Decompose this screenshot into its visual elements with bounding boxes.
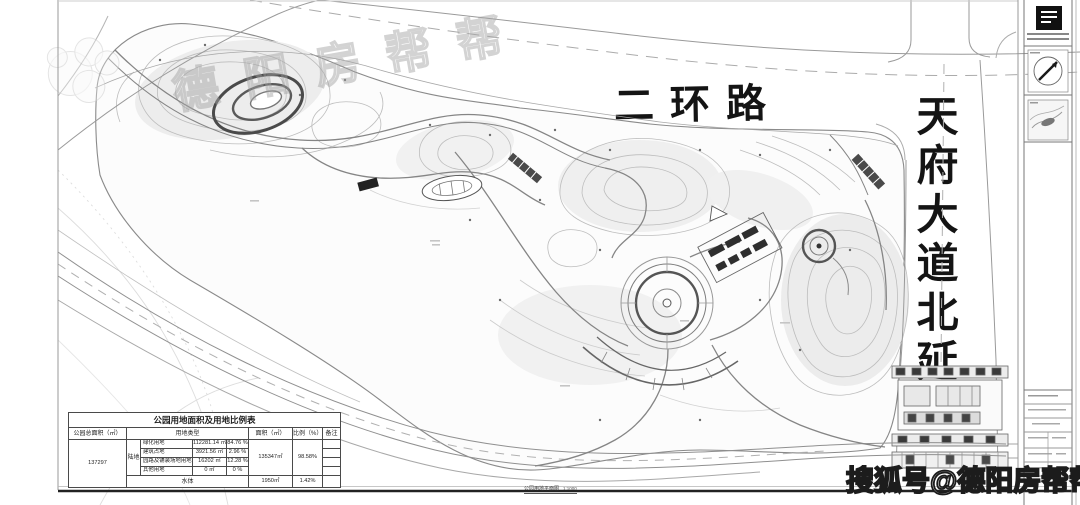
remarks-cell xyxy=(323,458,341,467)
north-arrow-icon xyxy=(1028,50,1068,92)
landuse-area: 16202 ㎡ xyxy=(193,458,227,467)
landuse-name: 园路及铺装场地用地 xyxy=(141,458,193,467)
remarks-cell xyxy=(323,476,341,488)
col-header-area: 面积（㎡） xyxy=(249,428,293,440)
land-use-table: 公园用地面积及用地比例表 公园总面积（㎡） 用地类型 面积（㎡） 比例（%） 备… xyxy=(68,412,340,488)
table-title: 公园用地面积及用地比例表 xyxy=(69,413,341,428)
landuse-ratio: 2.96 % xyxy=(227,449,249,458)
site-plan-sheet: { "plan_labels": { "ring_road": "二环路", "… xyxy=(0,0,1080,505)
landuse-ratio: 0 % xyxy=(227,467,249,476)
col-header-ratio: 比例（%） xyxy=(293,428,323,440)
drawing-caption: 公园用地平面图1:1000 xyxy=(524,485,577,494)
col-header-remarks: 备注 xyxy=(323,428,341,440)
landuse-name: 其他用地 xyxy=(141,467,193,476)
remarks-cell xyxy=(323,449,341,458)
water-area: 1950㎡ xyxy=(249,476,293,488)
landuse-name: 建筑占地 xyxy=(141,449,193,458)
land-total-area: 135347㎡ xyxy=(249,440,293,476)
title-block-graphics xyxy=(1027,33,1069,490)
landuse-area: 3921.56 ㎡ xyxy=(193,449,227,458)
landuse-ratio: 84.76 % xyxy=(227,440,249,449)
col-header-total-area: 公园总面积（㎡） xyxy=(69,428,127,440)
drawing-caption-scale: 1:1000 xyxy=(563,486,577,491)
drawing-caption-title: 公园用地平面图 xyxy=(524,486,559,492)
remarks-cell xyxy=(323,467,341,476)
land-total-ratio: 98.58% xyxy=(293,440,323,476)
landuse-name: 绿化用地 xyxy=(141,440,193,449)
road-crossing-structure xyxy=(892,366,1008,468)
sohu-watermark: 搜狐号@德阳房帮帮 xyxy=(846,459,1080,499)
col-header-landuse-type: 用地类型 xyxy=(127,428,249,440)
landuse-area: 112281.14 ㎡ xyxy=(193,440,227,449)
water-row-label: 水体 xyxy=(127,476,249,488)
landuse-ratio: 12.28 % xyxy=(227,458,249,467)
landuse-area: 0 ㎡ xyxy=(193,467,227,476)
land-group-label: 陆地 xyxy=(127,440,141,476)
total-area-value: 137297 xyxy=(69,440,127,488)
remarks-cell xyxy=(323,440,341,449)
key-map-thumbnail xyxy=(1028,100,1068,140)
water-ratio: 1.42% xyxy=(293,476,323,488)
company-logo xyxy=(1036,6,1062,30)
